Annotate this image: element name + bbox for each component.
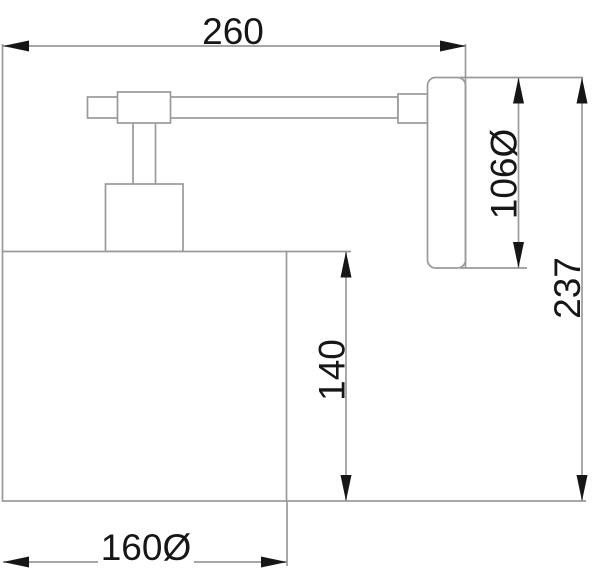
- dim-backplate-diameter: 106Ø: [484, 78, 525, 269]
- dim-shade-height-label: 140: [312, 339, 353, 401]
- wall-backplate: [428, 78, 466, 269]
- dim-shade-height-arrow-down: [341, 475, 352, 501]
- dim-overall-width-label: 260: [202, 11, 264, 52]
- dim-overall-width: 260: [3, 11, 466, 52]
- wall-lamp-dimension-drawing: 260 106Ø 237 140 160Ø: [0, 0, 600, 580]
- dim-overall-height-arrow-up: [577, 78, 588, 104]
- dim-shade-diameter-arrow-left: [3, 557, 29, 568]
- dim-backplate-diameter-arrow-up: [513, 78, 524, 104]
- dim-shade-diameter-arrow-right: [261, 557, 287, 568]
- arm-pivot-block: [118, 92, 171, 123]
- dim-overall-width-arrow-left: [3, 41, 29, 52]
- dimension-drawing-canvas: 260 106Ø 237 140 160Ø: [0, 0, 600, 580]
- lamp-figure: [3, 78, 466, 502]
- dim-shade-diameter-label: 160Ø: [101, 527, 192, 568]
- lamp-socket-block: [106, 184, 184, 252]
- dim-backplate-diameter-label: 106Ø: [484, 129, 525, 220]
- dim-backplate-diameter-arrow-down: [513, 242, 524, 268]
- dim-overall-width-arrow-right: [440, 41, 466, 52]
- dim-shade-height-arrow-up: [341, 252, 352, 278]
- lampshade: [3, 252, 287, 502]
- dim-overall-height-label: 237: [547, 257, 588, 319]
- wall-connector-block: [398, 94, 428, 123]
- dim-shade-diameter: 160Ø: [3, 527, 287, 568]
- dim-overall-height-arrow-down: [577, 475, 588, 501]
- dim-shade-height: 140: [312, 252, 353, 502]
- dim-overall-height: 237: [547, 78, 588, 502]
